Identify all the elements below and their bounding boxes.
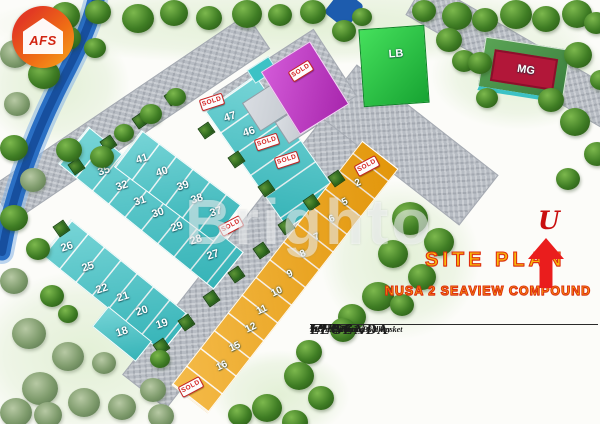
tree (122, 4, 154, 33)
tree (232, 0, 262, 28)
tree (300, 0, 326, 24)
tree (442, 2, 472, 30)
tree (468, 52, 492, 74)
north-label: U (538, 206, 560, 235)
tree (268, 4, 292, 26)
tree (40, 285, 64, 307)
tree (556, 168, 580, 190)
tree (85, 0, 111, 24)
palm-tree (92, 352, 116, 374)
developer-logo: AFS (12, 6, 74, 68)
palm-tree (68, 388, 100, 417)
tree (436, 28, 462, 52)
palm-tree (52, 342, 84, 371)
palm-tree (140, 378, 166, 402)
palm-tree (148, 404, 174, 424)
tree (58, 305, 78, 323)
palm-tree (22, 372, 58, 405)
logo-text: AFS (12, 33, 74, 48)
tree (564, 42, 592, 68)
tree (166, 88, 186, 106)
project-title: NUSA 2 SEAVIEW COMPOUND (378, 284, 598, 298)
tree (150, 350, 170, 368)
palm-tree (34, 402, 62, 424)
tree (476, 88, 498, 108)
palm-tree (12, 318, 46, 349)
palm-tree (20, 168, 46, 192)
tree (0, 205, 28, 231)
tree (332, 20, 356, 42)
palm-tree (108, 394, 136, 420)
tree (412, 0, 436, 22)
watermark: Brighto (185, 185, 434, 259)
tree (500, 0, 532, 29)
tree (160, 0, 188, 26)
tree (90, 146, 114, 168)
area-label-lb: LB (388, 48, 403, 61)
tree (252, 394, 282, 422)
palm-tree (0, 398, 32, 424)
tree (228, 404, 252, 424)
tree (538, 88, 564, 112)
tree (532, 6, 560, 32)
area-label-mg: MG (516, 63, 535, 78)
tree (26, 238, 50, 260)
tree (560, 108, 590, 136)
tree (140, 104, 162, 124)
legend-panel: LEGENDA K. 01 105 m2K. 02 105 m2K. 05 10… (310, 322, 598, 422)
tree (472, 8, 498, 32)
basketball-field-lot (358, 25, 429, 107)
tree (196, 6, 222, 30)
palm-tree (4, 92, 30, 116)
site-plan-image: 4746414039383735323130292827262522212019… (0, 0, 600, 424)
tree (84, 38, 106, 58)
tree (0, 135, 28, 161)
tree (352, 8, 372, 26)
legend-footnote-lb: LB : Lapangan Bola Basket (310, 325, 402, 334)
tree (114, 124, 134, 142)
palm-tree (0, 268, 28, 294)
tree (56, 138, 82, 162)
